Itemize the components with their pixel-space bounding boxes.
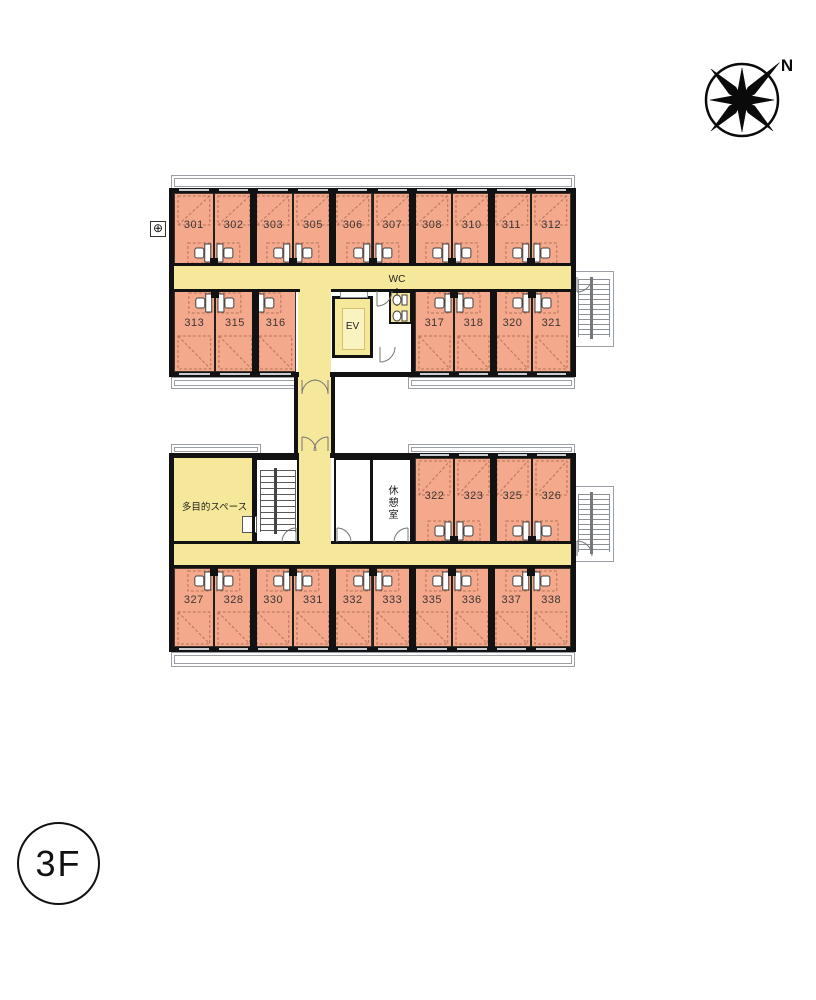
balcony-south-wing-north-left xyxy=(171,444,261,455)
room-number: 335 xyxy=(412,594,452,606)
wall xyxy=(329,193,336,266)
room-number: 322 xyxy=(415,490,454,502)
wall xyxy=(174,565,571,568)
window xyxy=(459,373,488,375)
room-number: 308 xyxy=(412,219,452,231)
room-number: 311 xyxy=(492,219,532,231)
partition xyxy=(292,568,294,647)
partition xyxy=(213,193,215,266)
room-313: 313 xyxy=(174,290,215,372)
window xyxy=(457,189,487,191)
room-number: 302 xyxy=(214,219,254,231)
window xyxy=(338,189,368,191)
window xyxy=(258,648,288,650)
wall xyxy=(250,193,257,266)
window xyxy=(179,189,209,191)
elevator-door xyxy=(340,291,368,298)
window xyxy=(417,648,447,650)
room-number: 338 xyxy=(531,594,571,606)
wall xyxy=(490,458,497,544)
window xyxy=(258,189,288,191)
benchmark-icon: ⊕ xyxy=(150,221,166,237)
toilet-room xyxy=(389,291,412,324)
room-302: 302 xyxy=(214,193,254,266)
wall xyxy=(252,290,259,372)
room-number: 305 xyxy=(293,219,333,231)
window xyxy=(459,454,488,456)
room-323: 323 xyxy=(454,458,493,544)
room-311: 311 xyxy=(492,193,532,266)
room-number: 332 xyxy=(333,594,373,606)
stair-rail xyxy=(590,492,593,554)
room-number: 303 xyxy=(253,219,293,231)
room-308: 308 xyxy=(412,193,452,266)
room-337: 337 xyxy=(492,568,532,647)
room-number: 328 xyxy=(214,594,254,606)
room-number: 327 xyxy=(174,594,214,606)
wall xyxy=(488,193,495,266)
compass-rose: N xyxy=(690,40,798,148)
partition xyxy=(213,568,215,647)
room-number: 306 xyxy=(333,219,373,231)
room-number: 317 xyxy=(415,317,454,329)
corridor-connector xyxy=(298,266,331,568)
room-310: 310 xyxy=(452,193,492,266)
window xyxy=(420,373,449,375)
wall-stub xyxy=(369,568,377,576)
wall xyxy=(488,568,495,647)
balcony-north-wing-south-right xyxy=(408,377,575,389)
floor-badge: 3F xyxy=(17,822,100,905)
wall-stub xyxy=(527,568,535,576)
room-317: 317 xyxy=(415,290,454,372)
multipurpose-space xyxy=(174,458,255,568)
room-number: 313 xyxy=(174,317,215,329)
room-331: 331 xyxy=(293,568,333,647)
window xyxy=(497,189,527,191)
room-303: 303 xyxy=(253,193,293,266)
window xyxy=(536,648,566,650)
room-333: 333 xyxy=(373,568,413,647)
partition xyxy=(292,193,294,266)
room-number: 336 xyxy=(452,594,492,606)
wall xyxy=(174,263,571,266)
room-number: 318 xyxy=(454,317,493,329)
window xyxy=(378,189,408,191)
corridor-opening-north xyxy=(299,372,330,378)
room-305: 305 xyxy=(293,193,333,266)
window xyxy=(338,648,368,650)
room-number: 316 xyxy=(255,317,296,329)
window xyxy=(417,189,447,191)
room-330: 330 xyxy=(253,568,293,647)
stair-treads xyxy=(578,279,610,337)
room-number: 337 xyxy=(492,594,532,606)
stair-rail xyxy=(274,468,277,534)
wall xyxy=(331,372,335,458)
wall xyxy=(409,193,416,266)
room-number: 301 xyxy=(174,219,214,231)
room-number: 315 xyxy=(215,317,256,329)
window xyxy=(498,373,527,375)
window xyxy=(179,648,209,650)
partition xyxy=(530,193,532,266)
room-338: 338 xyxy=(531,568,571,647)
room-number: 326 xyxy=(532,490,571,502)
room-316: 316 xyxy=(255,290,296,372)
balcony-north-wing-south-left xyxy=(171,377,300,389)
partition xyxy=(453,458,455,544)
stair-treads xyxy=(578,494,610,552)
wall-stub xyxy=(448,568,456,576)
room-321: 321 xyxy=(532,290,571,372)
partition xyxy=(531,458,533,544)
room-312: 312 xyxy=(531,193,571,266)
multipurpose-label: 多目的スペース xyxy=(174,499,255,513)
room-332: 332 xyxy=(333,568,373,647)
toilet-label: WC xyxy=(379,274,415,285)
window xyxy=(537,373,566,375)
room-327: 327 xyxy=(174,568,214,647)
wall-stub xyxy=(289,568,297,576)
window xyxy=(219,648,249,650)
room-335: 335 xyxy=(412,568,452,647)
wall xyxy=(331,541,571,544)
room-number: 310 xyxy=(452,219,492,231)
storage-room xyxy=(334,458,372,544)
partition xyxy=(372,568,374,647)
partition xyxy=(372,193,374,266)
stair-treads xyxy=(260,470,296,532)
window xyxy=(220,373,251,375)
window xyxy=(420,454,449,456)
elevator-label: EV xyxy=(332,321,373,332)
room-318: 318 xyxy=(454,290,493,372)
partition xyxy=(531,290,533,372)
window xyxy=(457,648,487,650)
rest-room-label: 休憩室 xyxy=(385,476,399,530)
partition xyxy=(214,290,216,372)
partition xyxy=(530,568,532,647)
room-315: 315 xyxy=(215,290,256,372)
wall-stub xyxy=(210,568,218,576)
wall xyxy=(174,289,300,292)
window xyxy=(537,454,566,456)
wall xyxy=(294,372,298,458)
wall xyxy=(329,568,336,647)
wall xyxy=(250,568,257,647)
wall xyxy=(411,290,415,372)
window xyxy=(378,648,408,650)
partition xyxy=(451,193,453,266)
room-number: 321 xyxy=(532,317,571,329)
room-number: 331 xyxy=(293,594,333,606)
room-number: 312 xyxy=(531,219,571,231)
room-328: 328 xyxy=(214,568,254,647)
window xyxy=(219,189,249,191)
window xyxy=(260,373,291,375)
wall xyxy=(174,541,300,544)
corridor-opening-south xyxy=(299,453,330,459)
room-number: 323 xyxy=(454,490,493,502)
compass-north-label: N xyxy=(781,56,793,75)
room-336: 336 xyxy=(452,568,492,647)
partition xyxy=(451,568,453,647)
room-301: 301 xyxy=(174,193,214,266)
wall xyxy=(490,290,497,372)
window xyxy=(179,373,210,375)
window xyxy=(298,648,328,650)
room-326: 326 xyxy=(532,458,571,544)
room-number: 333 xyxy=(373,594,413,606)
room-320: 320 xyxy=(493,290,532,372)
balcony-north xyxy=(171,175,575,190)
wall xyxy=(409,568,416,647)
floor-badge-label: 3F xyxy=(35,843,81,885)
room-number: 307 xyxy=(373,219,413,231)
stair-rail xyxy=(590,277,593,339)
window xyxy=(498,454,527,456)
window xyxy=(497,648,527,650)
partition xyxy=(453,290,455,372)
window xyxy=(298,189,328,191)
window xyxy=(536,189,566,191)
wall xyxy=(331,289,571,292)
balcony-south xyxy=(171,652,575,667)
room-number: 330 xyxy=(253,594,293,606)
room-322: 322 xyxy=(415,458,454,544)
floor-plan: 301 302 303 305 306 307 308 xyxy=(0,0,816,1000)
room-325: 325 xyxy=(493,458,532,544)
room-307: 307 xyxy=(373,193,413,266)
wall xyxy=(411,458,415,544)
corridor-north-wing xyxy=(174,266,571,290)
room-306: 306 xyxy=(333,193,373,266)
room-number: 325 xyxy=(493,490,532,502)
room-number: 320 xyxy=(493,317,532,329)
